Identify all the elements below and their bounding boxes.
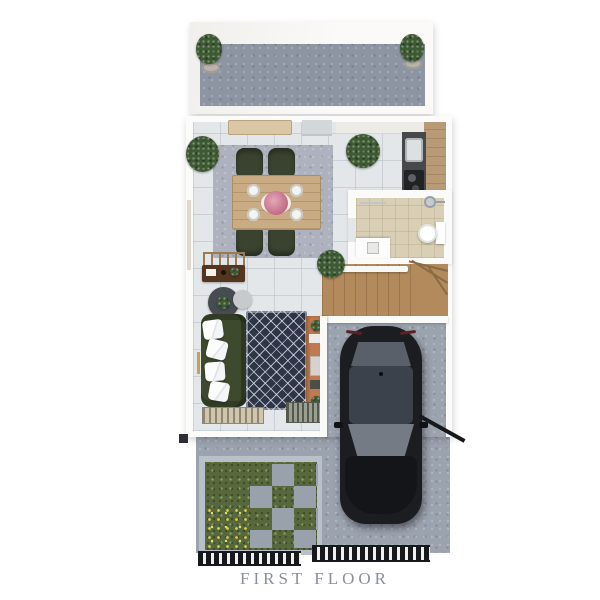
- car-windshield: [348, 424, 414, 456]
- stair-handrail: [338, 266, 408, 272]
- car-hood: [345, 456, 417, 514]
- terrace-floor: [200, 44, 425, 106]
- pillow-icon: [202, 319, 224, 341]
- car: [340, 326, 422, 524]
- flower-bouquet-icon: [264, 191, 288, 215]
- entry-gate-right: [312, 545, 430, 562]
- sideboard: [228, 120, 292, 135]
- pillow-icon: [205, 338, 229, 361]
- vanity-sink: [356, 238, 390, 258]
- antenna-icon: [379, 372, 383, 376]
- page-title: FIRST FLOOR: [140, 569, 490, 589]
- pillow-icon: [208, 380, 231, 402]
- bathroom-door-gap: [348, 218, 356, 242]
- door-panel: [302, 120, 332, 136]
- console-plant-icon: [230, 267, 239, 276]
- door-mat-right: [286, 402, 324, 423]
- garage-wall-left: [320, 316, 327, 437]
- entry-gate-left: [198, 551, 301, 566]
- toilet-bowl-icon: [418, 224, 437, 243]
- floor-lamp-icon: [197, 352, 200, 374]
- pot-icon: [408, 174, 416, 182]
- pouf-small: [233, 290, 252, 309]
- window-strip: [187, 200, 191, 270]
- console-table: [202, 265, 245, 282]
- pillow-icon: [204, 361, 225, 381]
- floor-plan-canvas: FIRST FLOOR: [0, 0, 600, 600]
- toilet-tank: [436, 222, 445, 244]
- bathroom: [348, 190, 452, 264]
- terrace-plant-left-icon: [196, 34, 222, 64]
- dining-plant-icon: [186, 136, 219, 172]
- stairs-plant-icon: [317, 250, 345, 278]
- plate-icon: [290, 184, 303, 197]
- plate-icon: [290, 208, 303, 221]
- kitchen-sink-icon: [405, 138, 423, 162]
- terrace-plant-right-icon: [400, 34, 424, 62]
- pouf-plant-icon: [217, 296, 230, 309]
- shower-head-icon: [424, 196, 436, 208]
- sink-basin-icon: [367, 242, 379, 254]
- living-rug: [246, 311, 307, 410]
- sofa: [201, 314, 247, 407]
- door-mat-left: [202, 407, 264, 424]
- garage-wall-top: [320, 316, 448, 323]
- plate-icon: [247, 208, 260, 221]
- shower-arm: [436, 201, 445, 203]
- towel-bar-icon: [360, 202, 386, 204]
- flower-patch: [205, 506, 251, 550]
- kitchen-plant-icon: [346, 134, 380, 168]
- side-mirror-icon: [334, 422, 343, 428]
- dining-table: [232, 175, 321, 230]
- vase-icon: [221, 270, 226, 275]
- wall-corner-cap: [179, 434, 188, 443]
- car-rear-window: [351, 342, 411, 366]
- book-icon: [206, 269, 216, 276]
- side-mirror-icon: [419, 422, 428, 428]
- stepping-stones: [250, 464, 318, 548]
- terrace: [190, 22, 433, 114]
- plate-icon: [247, 184, 260, 197]
